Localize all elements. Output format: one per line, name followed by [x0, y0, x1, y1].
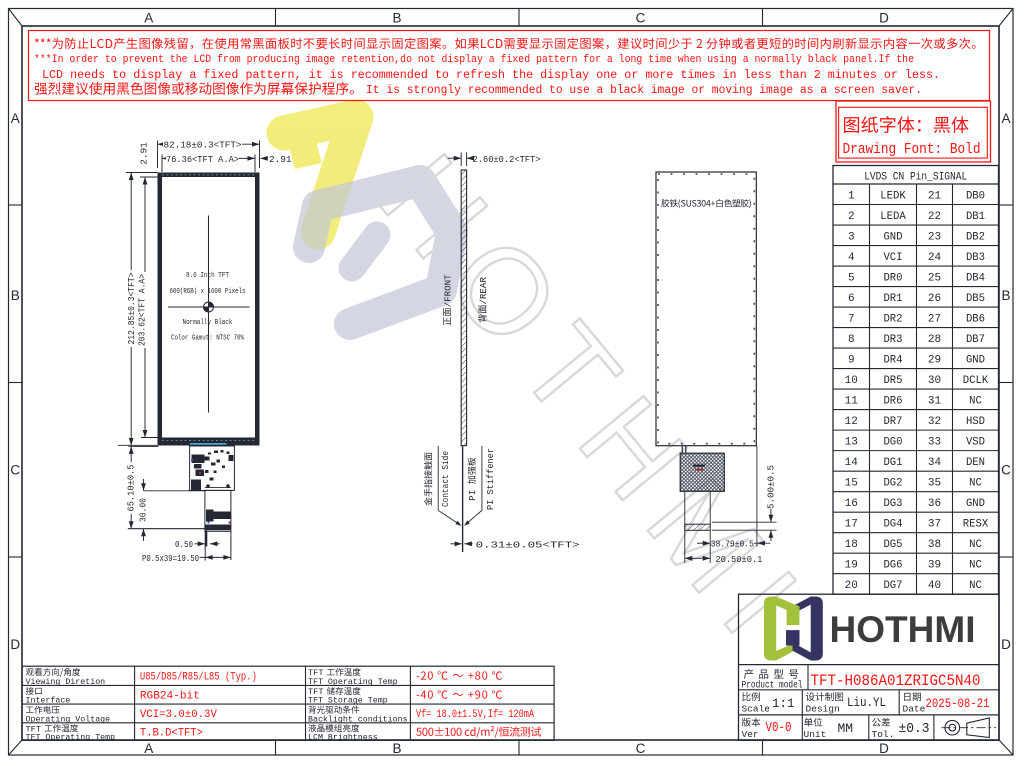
svg-text:34: 34: [928, 457, 942, 469]
svg-text:/REAR: /REAR: [478, 277, 489, 305]
svg-text:DR5: DR5: [883, 375, 902, 387]
svg-text:VCI=3.0±0.3V: VCI=3.0±0.3V: [140, 709, 217, 721]
svg-text:D: D: [879, 11, 889, 26]
svg-text:26: 26: [928, 293, 941, 305]
svg-text:DR2: DR2: [883, 313, 902, 325]
svg-text:DB5: DB5: [966, 293, 985, 305]
svg-text:DR1: DR1: [883, 293, 902, 305]
svg-text:B: B: [1001, 288, 1010, 303]
svg-text:DG6: DG6: [883, 559, 902, 571]
svg-text:D: D: [1001, 637, 1011, 652]
svg-text:Vf= 18.0±1.5V,If= 120mA: Vf= 18.0±1.5V,If= 120mA: [416, 709, 534, 721]
svg-text:DR6: DR6: [883, 395, 902, 407]
svg-text:2.60±0.2<TFT>: 2.60±0.2<TFT>: [473, 154, 541, 165]
svg-text:RESX: RESX: [963, 518, 989, 530]
svg-text:24: 24: [928, 252, 942, 264]
svg-text:A: A: [144, 11, 153, 26]
svg-text:14: 14: [845, 457, 859, 469]
svg-text:DG1: DG1: [883, 457, 902, 469]
svg-text:20.50±0.1: 20.50±0.1: [715, 554, 762, 565]
svg-text:DCLK: DCLK: [963, 375, 989, 387]
svg-text:DEN: DEN: [966, 457, 985, 469]
svg-text:1:1: 1:1: [772, 697, 795, 711]
svg-text:RGB24-bit: RGB24-bit: [140, 690, 200, 702]
svg-text:22: 22: [928, 211, 941, 223]
svg-text:It is strongly recommended to: It is strongly recommended to use a blac…: [366, 84, 922, 97]
svg-text:TFT: TFT: [308, 668, 323, 678]
svg-text:30.00: 30.00: [138, 498, 149, 522]
svg-text:37: 37: [928, 518, 941, 530]
svg-text:2: 2: [848, 211, 855, 223]
svg-text:Backlight conditions: Backlight conditions: [308, 714, 408, 724]
svg-text:13: 13: [845, 436, 858, 448]
svg-text:25: 25: [928, 272, 941, 284]
svg-text:33: 33: [928, 436, 941, 448]
svg-text:2.91: 2.91: [269, 154, 292, 165]
svg-text:DR7: DR7: [883, 416, 902, 428]
svg-text:DB7: DB7: [966, 334, 985, 346]
svg-text:7: 7: [848, 313, 855, 325]
svg-text:C: C: [636, 11, 646, 26]
svg-text:GND: GND: [966, 354, 985, 366]
svg-text:HSD: HSD: [966, 416, 985, 428]
svg-text:10: 10: [845, 375, 858, 387]
svg-text:DB3: DB3: [966, 252, 985, 264]
svg-text:DB4: DB4: [966, 272, 985, 284]
svg-text:NC: NC: [969, 559, 982, 571]
svg-text:28: 28: [928, 334, 941, 346]
svg-text:0.50: 0.50: [175, 539, 193, 550]
svg-text:600(RGB) x 1600 Pixels: 600(RGB) x 1600 Pixels: [170, 288, 246, 296]
svg-text:Date: Date: [903, 703, 926, 714]
svg-text:Liu.YL: Liu.YL: [847, 696, 886, 710]
svg-text:A: A: [11, 111, 20, 126]
svg-text:±0.3: ±0.3: [899, 721, 930, 737]
svg-text:T.B.D<TFT>: T.B.D<TFT>: [140, 728, 203, 740]
svg-text:NC: NC: [969, 539, 982, 551]
svg-text:1: 1: [848, 190, 855, 202]
svg-text:2025-08-21: 2025-08-21: [926, 696, 990, 711]
svg-text:GND: GND: [883, 231, 902, 243]
svg-text:DG0: DG0: [883, 436, 902, 448]
svg-text:A: A: [144, 741, 153, 756]
svg-text:DB2: DB2: [966, 231, 985, 243]
svg-text:32: 32: [928, 416, 941, 428]
svg-text:Operating Voltage: Operating Voltage: [26, 714, 111, 724]
svg-text:23: 23: [928, 231, 941, 243]
svg-text:P0.5x39=19.50: P0.5x39=19.50: [142, 553, 199, 564]
svg-text:DG7: DG7: [883, 580, 902, 592]
svg-text:19: 19: [845, 559, 858, 571]
svg-text:Tol.: Tol.: [872, 729, 895, 740]
svg-text:LCM Brightness: LCM Brightness: [308, 733, 378, 743]
svg-text:TFT-H086A01ZRIGC5N40: TFT-H086A01ZRIGC5N40: [811, 672, 981, 690]
svg-text:C: C: [10, 463, 20, 478]
svg-text:8.6 Inch TFT: 8.6 Inch TFT: [186, 272, 229, 280]
svg-text:16: 16: [845, 498, 858, 510]
svg-text:DB0: DB0: [966, 190, 985, 202]
svg-text:DG3: DG3: [883, 498, 902, 510]
svg-text:203.62<TFT A.A>: 203.62<TFT A.A>: [136, 274, 147, 346]
svg-text:DB1: DB1: [966, 211, 985, 223]
svg-text:DG5: DG5: [883, 539, 902, 551]
svg-text:DR4: DR4: [883, 354, 902, 366]
svg-text:B: B: [392, 11, 401, 26]
svg-text:82.18±0.3<TFT>: 82.18±0.3<TFT>: [164, 140, 242, 151]
svg-text:12: 12: [845, 416, 858, 428]
svg-text:C: C: [1001, 463, 1011, 478]
svg-text:NC: NC: [969, 580, 982, 592]
svg-text:18: 18: [845, 539, 858, 551]
svg-text:0.31±0.05<TFT>: 0.31±0.05<TFT>: [476, 539, 580, 550]
svg-text:Design: Design: [806, 703, 840, 714]
svg-text:27: 27: [928, 313, 941, 325]
svg-text:TFT Operating Temp: TFT Operating Temp: [26, 733, 116, 743]
svg-text:HOTHMI: HOTHMI: [830, 609, 976, 650]
svg-text:Drawing Font: Bold: Drawing Font: Bold: [843, 142, 981, 158]
svg-text:PI: PI: [467, 484, 478, 501]
svg-text:NC: NC: [969, 395, 982, 407]
svg-text:Product model: Product model: [742, 679, 803, 691]
svg-text:Color Gamut: NTSC 70%: Color Gamut: NTSC 70%: [171, 335, 244, 343]
svg-text:39: 39: [928, 559, 941, 571]
svg-text:***In order to prevent the LCD: ***In order to prevent the LCD from prod…: [34, 54, 914, 66]
svg-text:65.10±0.5: 65.10±0.5: [125, 464, 136, 511]
svg-text:31: 31: [928, 395, 942, 407]
svg-text:B: B: [11, 288, 20, 303]
svg-text:LEDA: LEDA: [880, 211, 906, 223]
svg-text:3: 3: [848, 231, 855, 243]
svg-text:Normally Black: Normally Black: [183, 319, 233, 327]
svg-text:36: 36: [928, 498, 941, 510]
svg-text:6: 6: [848, 293, 855, 305]
svg-text:40: 40: [928, 580, 941, 592]
svg-text:76.36<TFT A.A>: 76.36<TFT A.A>: [166, 154, 239, 165]
svg-text:C: C: [636, 741, 646, 756]
svg-text:20: 20: [845, 580, 858, 592]
svg-text:21: 21: [928, 190, 942, 202]
svg-text:VCI: VCI: [883, 252, 902, 264]
svg-text:8: 8: [848, 334, 855, 346]
svg-text:Interface: Interface: [26, 696, 71, 706]
svg-text:38.79±0.5: 38.79±0.5: [711, 539, 754, 550]
svg-text:30: 30: [928, 375, 941, 387]
svg-text:DR3: DR3: [883, 334, 902, 346]
svg-text:NC: NC: [969, 477, 982, 489]
svg-text:Viewing Diretion: Viewing Diretion: [26, 677, 106, 687]
svg-text:4: 4: [848, 252, 855, 264]
svg-text:DB6: DB6: [966, 313, 985, 325]
svg-text:Ver: Ver: [742, 729, 759, 740]
svg-text:DG4: DG4: [883, 518, 902, 530]
svg-text:LCD needs to display a fixed p: LCD needs to display a fixed pattern, it…: [42, 69, 940, 82]
svg-text:/FRONT: /FRONT: [442, 274, 453, 308]
svg-text:Unit: Unit: [804, 729, 827, 740]
svg-text:TFT Operating Temp: TFT Operating Temp: [308, 677, 398, 687]
svg-text:29: 29: [928, 354, 941, 366]
svg-text:9: 9: [848, 354, 855, 366]
svg-text:V0-0: V0-0: [766, 721, 792, 736]
svg-text:35: 35: [928, 477, 941, 489]
svg-text:GND: GND: [966, 498, 985, 510]
svg-text:DR0: DR0: [883, 272, 902, 284]
svg-text:38: 38: [928, 539, 941, 551]
svg-text:A: A: [1001, 111, 1010, 126]
svg-text:2.91: 2.91: [139, 142, 150, 165]
svg-text:PI Stiffener: PI Stiffener: [485, 448, 496, 510]
svg-text:17: 17: [845, 518, 858, 530]
svg-text:D: D: [879, 741, 889, 756]
svg-text:U85/D85/R85/L85 (Typ.): U85/D85/R85/L85 (Typ.): [140, 671, 257, 683]
svg-text:5: 5: [848, 272, 855, 284]
svg-text:11: 11: [845, 395, 859, 407]
svg-text:TFT Storage Temp: TFT Storage Temp: [308, 697, 388, 706]
svg-text:VSD: VSD: [966, 436, 985, 448]
svg-text:B: B: [392, 741, 401, 756]
svg-text:Scale: Scale: [742, 703, 771, 714]
svg-text:LEDK: LEDK: [880, 190, 906, 202]
svg-text:15: 15: [845, 477, 858, 489]
svg-text:5.00±0.5: 5.00±0.5: [766, 465, 777, 509]
svg-text:D: D: [10, 637, 20, 652]
svg-text:Contact Side: Contact Side: [440, 451, 451, 507]
svg-text:LVDS CN Pin_SIGNAL: LVDS CN Pin_SIGNAL: [864, 172, 967, 184]
svg-text:MM: MM: [838, 721, 854, 736]
svg-text:DG2: DG2: [883, 477, 902, 489]
